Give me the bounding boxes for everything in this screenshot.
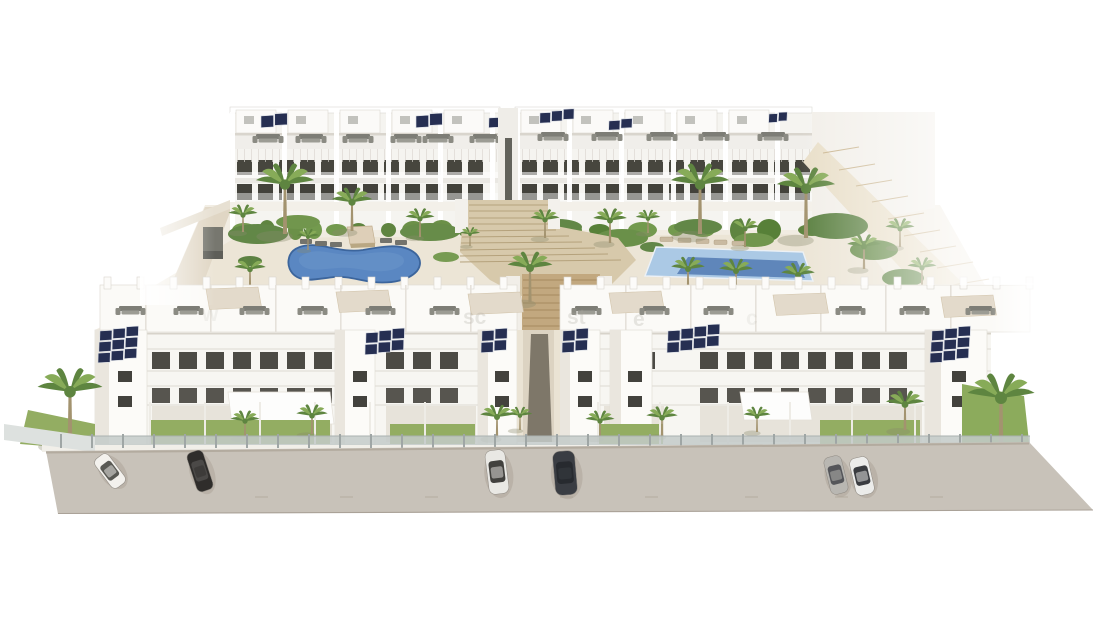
svg-text:w: w xyxy=(201,303,219,326)
svg-text:sc: sc xyxy=(463,306,487,329)
svg-text:c: c xyxy=(746,307,758,330)
svg-text:e: e xyxy=(633,308,645,331)
svg-text:st: st xyxy=(567,306,586,329)
